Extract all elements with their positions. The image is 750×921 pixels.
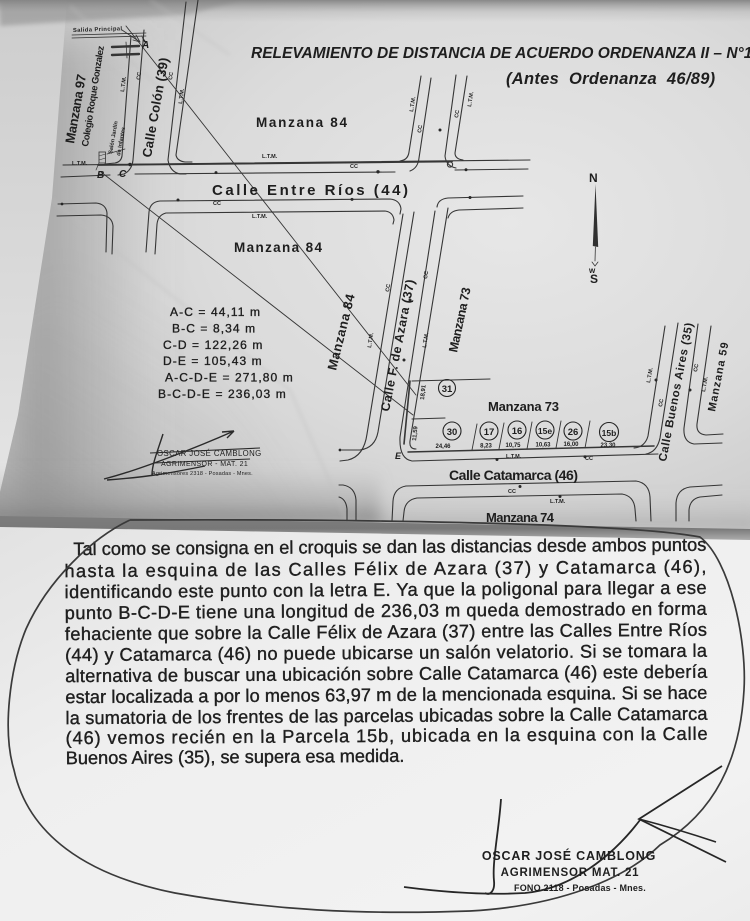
svg-text:B: B (97, 170, 104, 181)
svg-text:15b: 15b (602, 428, 617, 438)
svg-text:Buenos Aires (35), se supera e: Buenos Aires (35), se supera esa medida. (66, 746, 405, 768)
svg-text:C: C (119, 169, 127, 180)
svg-text:26: 26 (568, 427, 579, 438)
svg-text:FONO 2118 - Posadas - Mnes.: FONO 2118 - Posadas - Mnes. (514, 883, 646, 893)
svg-text:B-C = 8,34 m: B-C = 8,34 m (172, 322, 256, 336)
svg-text:8,23: 8,23 (480, 444, 492, 450)
svg-text:CC: CC (385, 284, 392, 293)
svg-text:A-C-D-E = 271,80 m: A-C-D-E = 271,80 m (165, 371, 294, 385)
svg-text:A-C = 44,11 m: A-C = 44,11 m (170, 305, 261, 319)
svg-text:A: A (141, 40, 149, 51)
svg-text:16,00: 16,00 (563, 442, 579, 448)
svg-text:16: 16 (512, 426, 523, 437)
svg-text:AGRIMENSOR MAT. 21: AGRIMENSOR MAT. 21 (501, 867, 640, 879)
svg-text:10,75: 10,75 (505, 443, 521, 449)
svg-text:OSCAR JOSÉ CAMBLONG: OSCAR JOSÉ CAMBLONG (482, 848, 656, 863)
svg-text:CC: CC (508, 489, 516, 495)
svg-text:10,63: 10,63 (535, 443, 551, 449)
svg-text:17: 17 (484, 427, 495, 438)
svg-text:CC: CC (423, 271, 430, 280)
svg-text:CC: CC (454, 110, 461, 119)
svg-text:CC: CC (417, 125, 424, 134)
svg-text:CC: CC (136, 72, 143, 81)
svg-text:31: 31 (442, 384, 453, 395)
svg-text:(Antes Ordenanza 46/89): (Antes Ordenanza 46/89) (506, 70, 716, 88)
svg-text:N: N (589, 171, 598, 185)
svg-text:w: w (588, 266, 596, 275)
svg-text:Manzana 73: Manzana 73 (488, 399, 559, 414)
svg-text:Agrimensores 2318 - Posadas -: Agrimensores 2318 - Posadas - Mnes. (152, 471, 253, 477)
svg-text:D-E = 105,43 m: D-E = 105,43 m (163, 354, 263, 368)
svg-text:L.T.M.: L.T.M. (550, 499, 566, 505)
svg-text:30: 30 (447, 427, 458, 438)
svg-text:C-D = 122,26 m: C-D = 122,26 m (163, 338, 263, 352)
svg-text:CC: CC (585, 456, 593, 462)
svg-text:CC: CC (213, 201, 221, 207)
svg-text:B-C-D-E = 236,03 m: B-C-D-E = 236,03 m (158, 387, 287, 401)
svg-text:L.T.M.: L.T.M. (252, 214, 268, 220)
svg-text:E: E (395, 451, 402, 461)
svg-text:24,46: 24,46 (435, 444, 451, 450)
svg-text:Calle Catamarca (46): Calle Catamarca (46) (449, 467, 578, 483)
svg-text:Manzana 84: Manzana 84 (234, 240, 322, 255)
svg-text:RELEVAMIENTO DE DISTANCIA DE A: RELEVAMIENTO DE DISTANCIA DE ACUERDO ORD… (251, 45, 750, 62)
svg-text:L.T.M.: L.T.M. (506, 454, 522, 460)
svg-text:CC: CC (350, 164, 358, 170)
svg-text:Manzana 84: Manzana 84 (256, 115, 347, 130)
svg-text:CC: CC (168, 72, 175, 81)
svg-text:L.T.M.: L.T.M. (72, 161, 88, 167)
svg-text:L.T.M.: L.T.M. (262, 154, 278, 160)
svg-text:15e: 15e (538, 426, 552, 436)
svg-text:23,30: 23,30 (600, 443, 616, 449)
